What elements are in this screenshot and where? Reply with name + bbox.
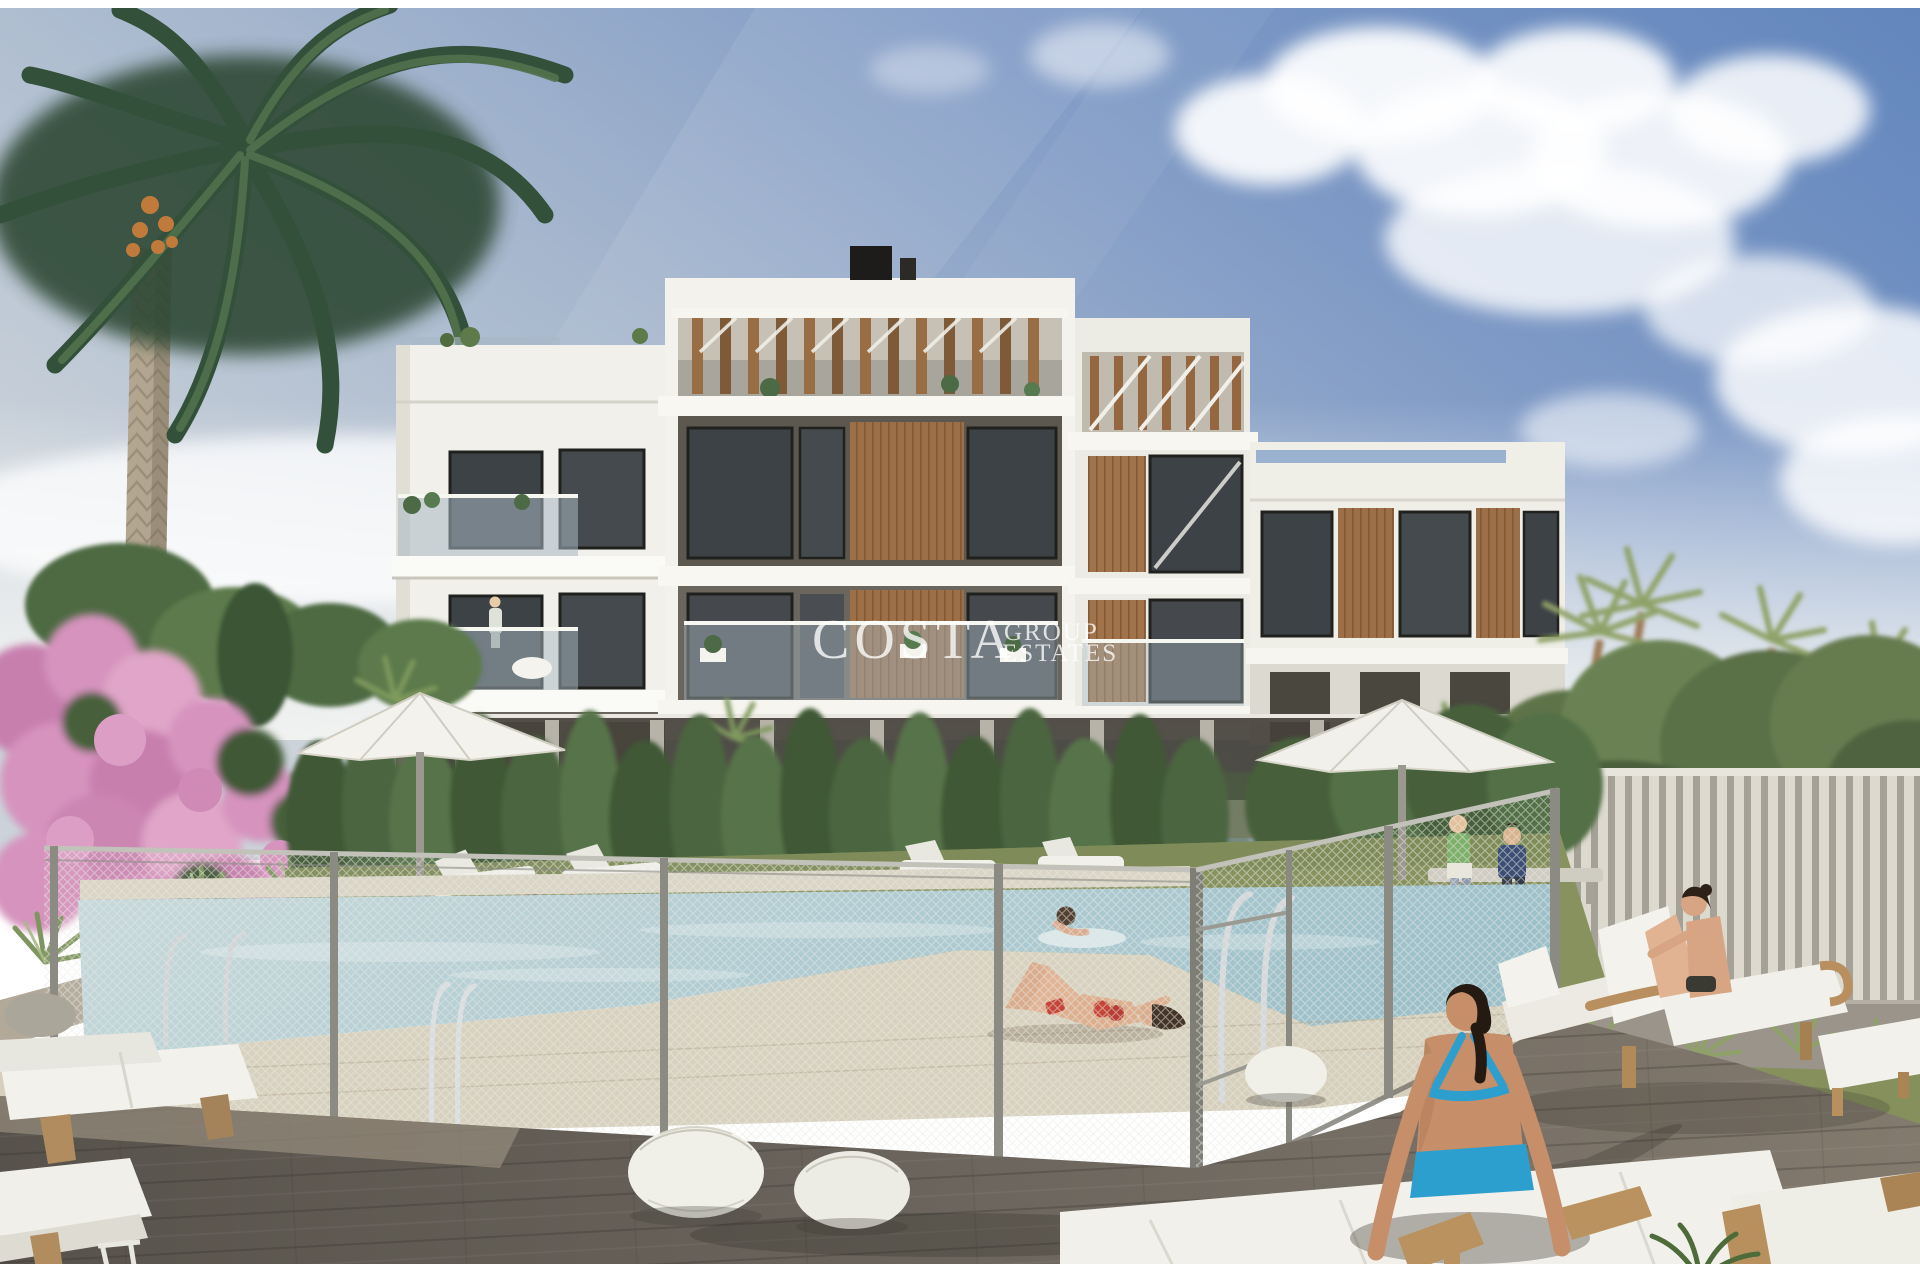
render-canvas: COSTA GROUP ESTATES <box>0 0 1920 1280</box>
balcony-glass <box>398 495 578 557</box>
window <box>688 428 792 558</box>
bikini-bottom <box>1410 1144 1534 1198</box>
building-right-wing <box>1246 442 1568 745</box>
image-border-bottom <box>0 1264 1920 1280</box>
pergola-right-center <box>1082 352 1244 432</box>
rooftop-pergola <box>672 308 1068 398</box>
pouf <box>1245 1046 1327 1107</box>
chimney <box>850 246 892 280</box>
watermark-estates: ESTATES <box>1002 640 1118 667</box>
watermark: COSTA GROUP ESTATES <box>812 609 1118 671</box>
window <box>968 428 1056 558</box>
pouf <box>628 1126 764 1226</box>
rooftop-glass-balustrade <box>1256 450 1506 463</box>
stone-pouf <box>4 993 76 1037</box>
fence-post <box>994 864 1003 1186</box>
fence-post <box>660 858 668 1178</box>
window <box>1262 512 1332 636</box>
property-render-photo: COSTA GROUP ESTATES <box>0 0 1920 1280</box>
fence-post <box>1384 826 1393 1098</box>
pouf <box>794 1151 910 1236</box>
image-border-top <box>0 0 1920 8</box>
ponytail <box>1476 1028 1481 1078</box>
watermark-costa: COSTA <box>812 609 1016 671</box>
